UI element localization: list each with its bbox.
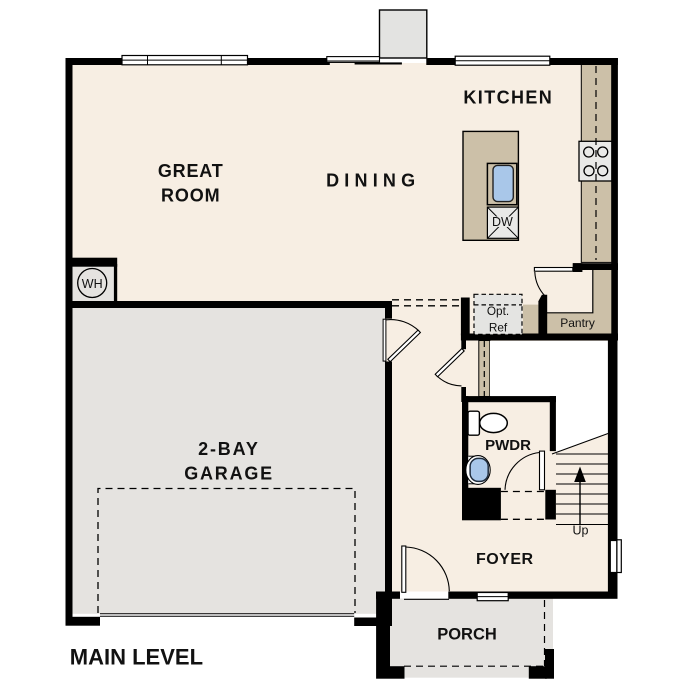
svg-text:Ref: Ref — [489, 320, 508, 334]
svg-text:MAIN LEVEL: MAIN LEVEL — [70, 645, 203, 670]
svg-text:PORCH: PORCH — [437, 626, 497, 644]
svg-text:FOYER: FOYER — [476, 551, 534, 568]
svg-text:Up: Up — [573, 524, 589, 538]
svg-text:PWDR: PWDR — [485, 437, 531, 454]
svg-text:KITCHEN: KITCHEN — [463, 88, 553, 108]
svg-text:GARAGE: GARAGE — [184, 464, 274, 484]
svg-text:WH: WH — [82, 277, 103, 291]
svg-text:GREAT: GREAT — [158, 161, 224, 181]
svg-text:DW: DW — [492, 215, 513, 229]
svg-text:Opt.: Opt. — [487, 304, 509, 318]
svg-text:Pantry: Pantry — [560, 316, 595, 330]
svg-text:DINING: DINING — [326, 170, 420, 190]
svg-text:ROOM: ROOM — [161, 185, 221, 205]
svg-text:2-BAY: 2-BAY — [198, 439, 260, 459]
